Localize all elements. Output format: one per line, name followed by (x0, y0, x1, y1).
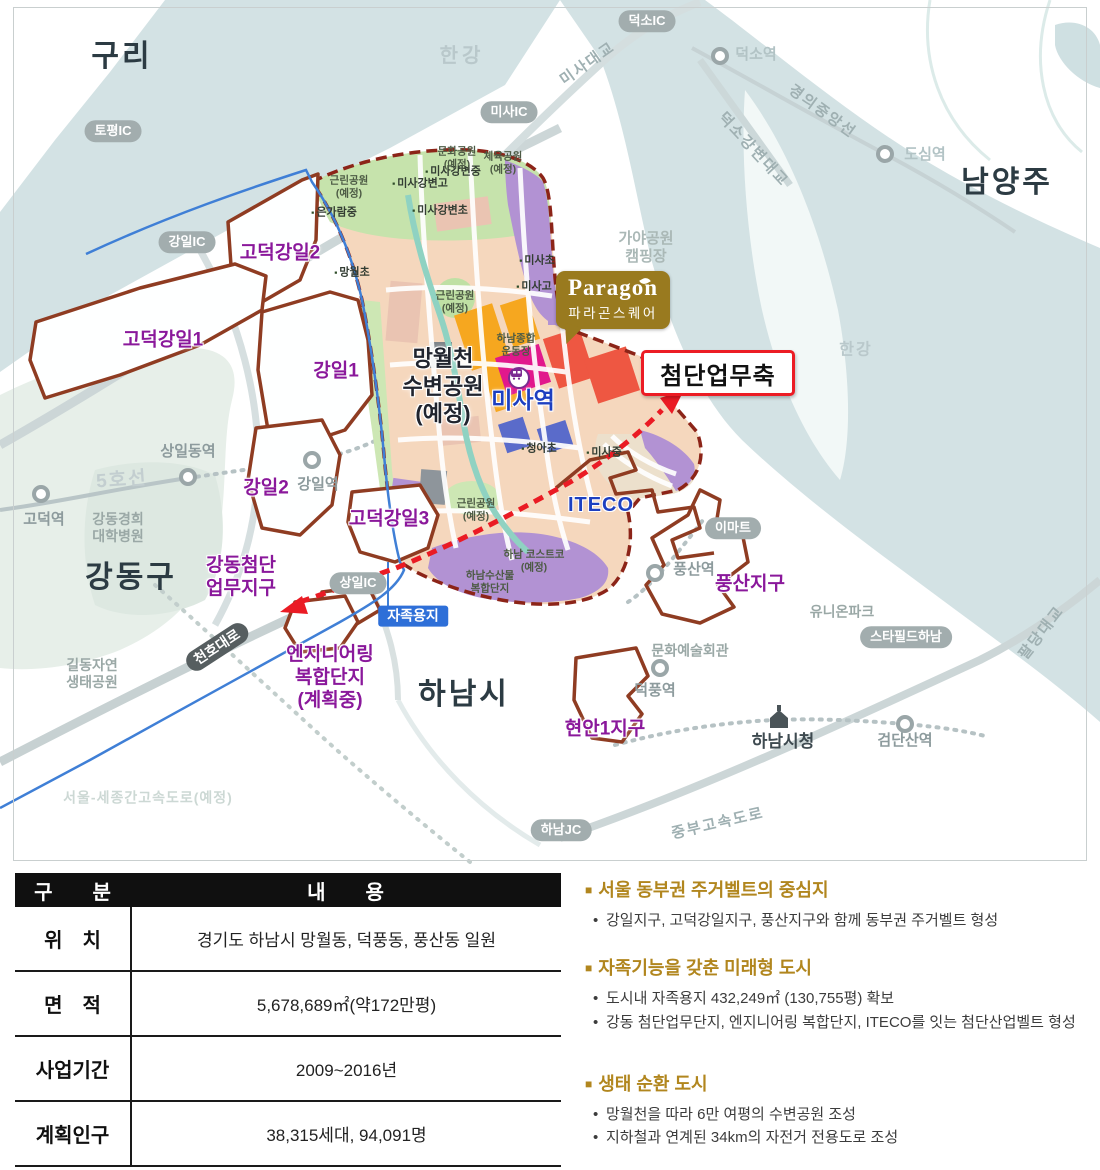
hangang-right-label-text: 한강 (839, 341, 872, 358)
train-icon (510, 369, 523, 380)
cheyuk-park-label: 체육공원 (예정) (484, 150, 523, 175)
misa-bridge-label-text: 미사대교 (557, 39, 619, 89)
misa-bridge-label: 미사대교 (557, 39, 619, 90)
cheonho-daero-badge: 천호대로 (182, 619, 252, 674)
bullet-item: 강일지구, 고덕강일지구, 풍산지구와 함께 동부권 주거벨트 형성 (593, 909, 1097, 932)
cheonga-ele-label: ▪청아초 (521, 442, 557, 455)
map-label-layer: 구리남양주강동구하남시한강한강토평IC강일IC미사IC덕소IC상일IC하남JC이… (0, 0, 1100, 868)
sports-complex-label-text: 하남종합 운동장 (497, 332, 536, 357)
namyangju-label: 남양주 (961, 165, 1053, 201)
gangil-ic-badge-text: 강일IC (169, 234, 206, 249)
eungaram-mid-label-text: 은가람중 (316, 206, 356, 218)
business-axis-text: 첨단업무축 (660, 356, 775, 391)
gangdong-gu-label-text: 강동구 (85, 561, 177, 594)
paldang-bridge-label: 팔당대교 (1015, 603, 1068, 664)
geunrin-park-s-label-text: 근린공원 (예정) (457, 497, 496, 522)
susan-complex-label: 하남수산물 복합단지 (466, 569, 514, 594)
gangdong-gu-label: 강동구 (85, 560, 177, 596)
munhwa-park-label: 문화공원 (예정) (438, 145, 477, 170)
school-icon: ▪ (586, 447, 589, 457)
row-label: 사업기간 (15, 1054, 130, 1083)
paragon-logo: Paragon (556, 275, 670, 301)
hanam-cityhall-label: 하남시청 (752, 732, 815, 752)
misa-mid-label-text: 미사중 (591, 446, 621, 458)
emart-badge: 이마트 (705, 517, 761, 539)
hyeonan1-jigu-label-text: 현안1지구 (565, 719, 646, 740)
gangil-station-label: 강일역 (297, 476, 338, 494)
geunrin-park-c-label: 근린공원 (예정) (436, 289, 475, 314)
sports-complex-label: 하남종합 운동장 (497, 332, 536, 357)
union-park-label: 유니온파크 (810, 604, 874, 621)
gangdong-biz-label-text: 강동첨단 업무지구 (206, 555, 276, 599)
munhwa-art-hall-label: 문화예술회관 (651, 643, 728, 660)
iteco-label: ITECO (568, 493, 634, 517)
table-header-row: 구 분 내 용 (15, 873, 561, 907)
row-value: 경기도 하남시 망월동, 덕풍동, 풍산동 일원 (130, 907, 561, 970)
highlight-section-1: 서울 동부권 주거벨트의 중심지 강일지구, 고덕강일지구, 풍산지구와 함께 … (585, 876, 1097, 932)
cheyuk-park-label-text: 체육공원 (예정) (484, 150, 523, 175)
misa-high-label-text: 미사고 (521, 280, 551, 292)
section-bullets: 도시내 자족용지 432,249㎡ (130,755평) 확보 강동 첨단업무단… (585, 987, 1097, 1034)
deokso-station-label: 덕소역 (735, 46, 776, 64)
pungsan-jigu-label: 풍산지구 (715, 574, 785, 597)
school-icon: ▪ (412, 205, 415, 215)
geunrin-park-c-label-text: 근린공원 (예정) (436, 289, 475, 314)
row-value: 5,678,689㎡(약172만평) (130, 972, 561, 1035)
godeok-station-label-text: 고덕역 (23, 511, 64, 528)
eng-complex-label-text: 엔지니어링 복합단지 (계획중) (286, 644, 373, 711)
misa-ele-label: ▪미사초 (519, 254, 555, 267)
susan-complex-label-text: 하남수산물 복합단지 (466, 569, 514, 594)
school-icon: ▪ (334, 267, 337, 277)
munhwa-art-hall-label-text: 문화예술회관 (651, 643, 728, 659)
sejong-expressway-label-text: 서울-세종간고속도로(예정) (63, 790, 233, 806)
godeok-station-label: 고덕역 (23, 511, 64, 529)
business-axis-callout: 첨단업무축 (641, 350, 795, 396)
gangil1-label-text: 강일1 (313, 361, 359, 382)
geunrin-park-nw-label: 근린공원 (예정) (330, 174, 369, 199)
section-title: 자족기능을 갖춘 미래형 도시 (585, 954, 1097, 980)
gyeongui-line-label: 경의중앙선 (785, 81, 860, 142)
bullet-item: 도시내 자족용지 432,249㎡ (130,755평) 확보 (593, 987, 1097, 1010)
union-park-label-text: 유니온파크 (810, 604, 874, 620)
pungsan-jigu-label-text: 풍산지구 (715, 574, 785, 595)
gildong-eco-park-label: 길동자연 생태공원 (66, 657, 118, 691)
hangang-right-label: 한강 (839, 340, 872, 359)
deokso-bridge-label: 덕소강변대교 (714, 109, 792, 191)
topyeong-ic-badge-text: 토평IC (95, 123, 132, 138)
hanam-jc-badge: 하남JC (531, 819, 592, 841)
row-label: 위 치 (15, 924, 130, 953)
table-row-location: 위 치 경기도 하남시 망월동, 덕풍동, 풍산동 일원 (15, 907, 561, 972)
school-icon: ▪ (311, 207, 314, 217)
hanam-jc-badge-text: 하남JC (541, 822, 582, 837)
project-info-table: 구 분 내 용 위 치 경기도 하남시 망월동, 덕풍동, 풍산동 일원 면 적… (15, 873, 561, 1167)
gyeongui-line-label-text: 경의중앙선 (785, 81, 859, 141)
deokso-ic-badge: 덕소IC (619, 10, 676, 32)
section-bullets: 망월천을 따라 6만 여평의 수변공원 조성 지하철과 연계된 34km의 자전… (585, 1103, 1097, 1150)
row-label: 면 적 (15, 989, 130, 1018)
gaya-park-label: 가야공원 캠핑장 (618, 230, 673, 266)
hanam-cityhall-label-text: 하남시청 (752, 732, 815, 751)
row-value: 38,315세대, 94,091명 (130, 1102, 561, 1165)
deokpung-station-label-text: 덕풍역 (634, 682, 675, 699)
school-icon: ▪ (392, 178, 395, 188)
section-title: 서울 동부권 주거벨트의 중심지 (585, 876, 1097, 902)
sangildong-station-label: 상일동역 (160, 443, 215, 461)
misa-mid-label: ▪미사중 (586, 446, 622, 459)
starfield-badge: 스타필드하남 (860, 626, 952, 648)
eungaram-mid-label: ▪은가람중 (311, 206, 357, 219)
table-row-population: 계획인구 38,315세대, 94,091명 (15, 1102, 561, 1167)
gangil1-label: 강일1 (313, 361, 359, 384)
misa-high-label: ▪미사고 (516, 280, 552, 293)
hangang-top-label-text: 한강 (440, 45, 485, 67)
deokso-station-label-text: 덕소역 (735, 46, 776, 63)
godeok-gangil1-label-text: 고덕강일1 (123, 330, 204, 351)
mangwolcheon-park-label: 망월천 수변공원 (예정) (403, 345, 484, 428)
emart-badge-text: 이마트 (715, 520, 751, 535)
misa-station-label-text: 미사역 (491, 387, 554, 413)
highlight-section-3: 생태 순환 도시 망월천을 따라 6만 여평의 수변공원 조성 지하철과 연계된… (585, 1070, 1097, 1150)
topyeong-ic-badge: 토평IC (85, 120, 142, 142)
gangil-station-label-text: 강일역 (297, 476, 338, 493)
eng-complex-label: 엔지니어링 복합단지 (계획중) (286, 644, 373, 712)
guri-label-text: 구리 (91, 40, 152, 73)
school-icon: ▪ (521, 443, 524, 453)
table-row-period: 사업기간 2009~2016년 (15, 1037, 561, 1102)
hyeonan1-jigu-label: 현안1지구 (565, 719, 646, 742)
row-value: 2009~2016년 (130, 1037, 561, 1100)
gildong-eco-park-label-text: 길동자연 생태공원 (66, 657, 118, 690)
misa-ele-label-text: 미사초 (524, 254, 554, 266)
kyunghee-hospital-label-text: 강동경희 대학병원 (92, 511, 144, 544)
geunrin-park-nw-label-text: 근린공원 (예정) (330, 174, 369, 199)
misagangbyeon-high-label: ▪미사강변고 (392, 177, 448, 190)
row-label: 계획인구 (15, 1119, 130, 1148)
cheonga-ele-label-text: 청아초 (526, 442, 556, 454)
school-icon: ▪ (425, 166, 428, 176)
pungsan-station-label: 풍산역 (673, 561, 714, 579)
cheonho-daero-badge-text: 천호대로 (191, 626, 243, 667)
jungbu-expressway-label-text: 중부고속도로 (670, 805, 766, 843)
misa-station-label: 미사역 (491, 387, 554, 415)
godeok-gangil1-label: 고덕강일1 (123, 330, 204, 353)
paragon-subtitle: 파라곤스퀘어 (556, 302, 670, 322)
mangwolcheon-park-label-text: 망월천 수변공원 (예정) (403, 346, 484, 426)
bullet-item: 강동 첨단업무단지, 엔지니어링 복합단지, ITECO를 잇는 첨단산업벨트 … (593, 1011, 1097, 1034)
godeok-gangil3-label-text: 고덕강일3 (349, 509, 430, 530)
table-row-area: 면 적 5,678,689㎡(약172만평) (15, 972, 561, 1037)
misa-ic-badge: 미사IC (481, 101, 538, 123)
misa-station-icon (508, 367, 530, 389)
jajok-yongji-badge-text: 자족용지 (387, 608, 439, 624)
header-category: 구 분 (15, 876, 130, 905)
dosim-station-label: 도심역 (904, 146, 945, 164)
geomdansan-station-label: 검단산역 (877, 732, 932, 750)
paldang-bridge-label-text: 팔당대교 (1015, 603, 1067, 663)
misa-ic-badge-text: 미사IC (491, 104, 528, 119)
deokso-bridge-label-text: 덕소강변대교 (715, 109, 792, 190)
godeok-gangil3-label: 고덕강일3 (349, 509, 430, 532)
hanam-si-label-text: 하남시 (418, 678, 510, 711)
starfield-badge-text: 스타필드하남 (870, 629, 942, 644)
highlights-panel: 서울 동부권 주거벨트의 중심지 강일지구, 고덕강일지구, 풍산지구와 함께 … (585, 876, 1097, 1170)
misagangbyeon-ele-label: ▪미사강변초 (412, 204, 468, 217)
pungsan-station-label-text: 풍산역 (673, 561, 714, 578)
school-icon: ▪ (519, 255, 522, 265)
line5-label-text: 5호선 (96, 468, 149, 493)
gangil2-label-text: 강일2 (243, 478, 289, 499)
school-icon: ▪ (516, 281, 519, 291)
hangang-top-label: 한강 (440, 44, 485, 68)
deokpung-station-label: 덕풍역 (634, 682, 675, 700)
bullet-item: 망월천을 따라 6만 여평의 수변공원 조성 (593, 1103, 1097, 1126)
godeok-gangil2-label-text: 고덕강일2 (240, 243, 321, 264)
hanam-si-label: 하남시 (418, 677, 510, 713)
sangil-ic-badge-text: 상일IC (340, 575, 377, 590)
munhwa-park-label-text: 문화공원 (예정) (438, 145, 477, 170)
kyunghee-hospital-label: 강동경희 대학병원 (92, 511, 144, 545)
line5-label: 5호선 (96, 468, 149, 494)
sangildong-station-label-text: 상일동역 (160, 443, 215, 460)
section-bullets: 강일지구, 고덕강일지구, 풍산지구와 함께 동부권 주거벨트 형성 (585, 909, 1097, 932)
bullet-item: 지하철과 연계된 34km의 자전거 전용도로 조성 (593, 1126, 1097, 1149)
misagangbyeon-ele-label-text: 미사강변초 (417, 204, 468, 216)
geunrin-park-s-label: 근린공원 (예정) (457, 497, 496, 522)
header-content: 내 용 (130, 876, 561, 905)
dosim-station-label-text: 도심역 (904, 146, 945, 163)
guri-label: 구리 (91, 39, 152, 75)
location-map: 구리남양주강동구하남시한강한강토평IC강일IC미사IC덕소IC상일IC하남JC이… (0, 0, 1100, 868)
godeok-gangil2-label: 고덕강일2 (240, 243, 321, 266)
mangwol-ele-label: ▪망월초 (334, 266, 370, 279)
namyangju-label-text: 남양주 (961, 166, 1053, 199)
gaya-park-label-text: 가야공원 캠핑장 (618, 230, 673, 265)
jajok-yongji-badge: 자족용지 (378, 606, 448, 627)
deokso-ic-badge-text: 덕소IC (629, 13, 666, 28)
misagangbyeon-high-label-text: 미사강변고 (397, 177, 448, 189)
mangwol-ele-label-text: 망월초 (339, 266, 369, 278)
highlight-section-2: 자족기능을 갖춘 미래형 도시 도시내 자족용지 432,249㎡ (130,7… (585, 954, 1097, 1034)
iteco-label-text: ITECO (568, 494, 634, 516)
misa-district-infographic: 구리남양주강동구하남시한강한강토평IC강일IC미사IC덕소IC상일IC하남JC이… (0, 0, 1100, 1170)
section-title: 생태 순환 도시 (585, 1070, 1097, 1096)
jungbu-expressway-label: 중부고속도로 (670, 805, 766, 844)
sangil-ic-badge: 상일IC (330, 572, 387, 594)
gangdong-biz-label: 강동첨단 업무지구 (206, 555, 276, 601)
geomdansan-station-label-text: 검단산역 (877, 732, 932, 749)
gangil-ic-badge: 강일IC (159, 231, 216, 253)
paragon-callout: Paragon 파라곤스퀘어 (556, 271, 670, 329)
sejong-expressway-label: 서울-세종간고속도로(예정) (63, 790, 233, 807)
gangil2-label: 강일2 (243, 478, 289, 501)
